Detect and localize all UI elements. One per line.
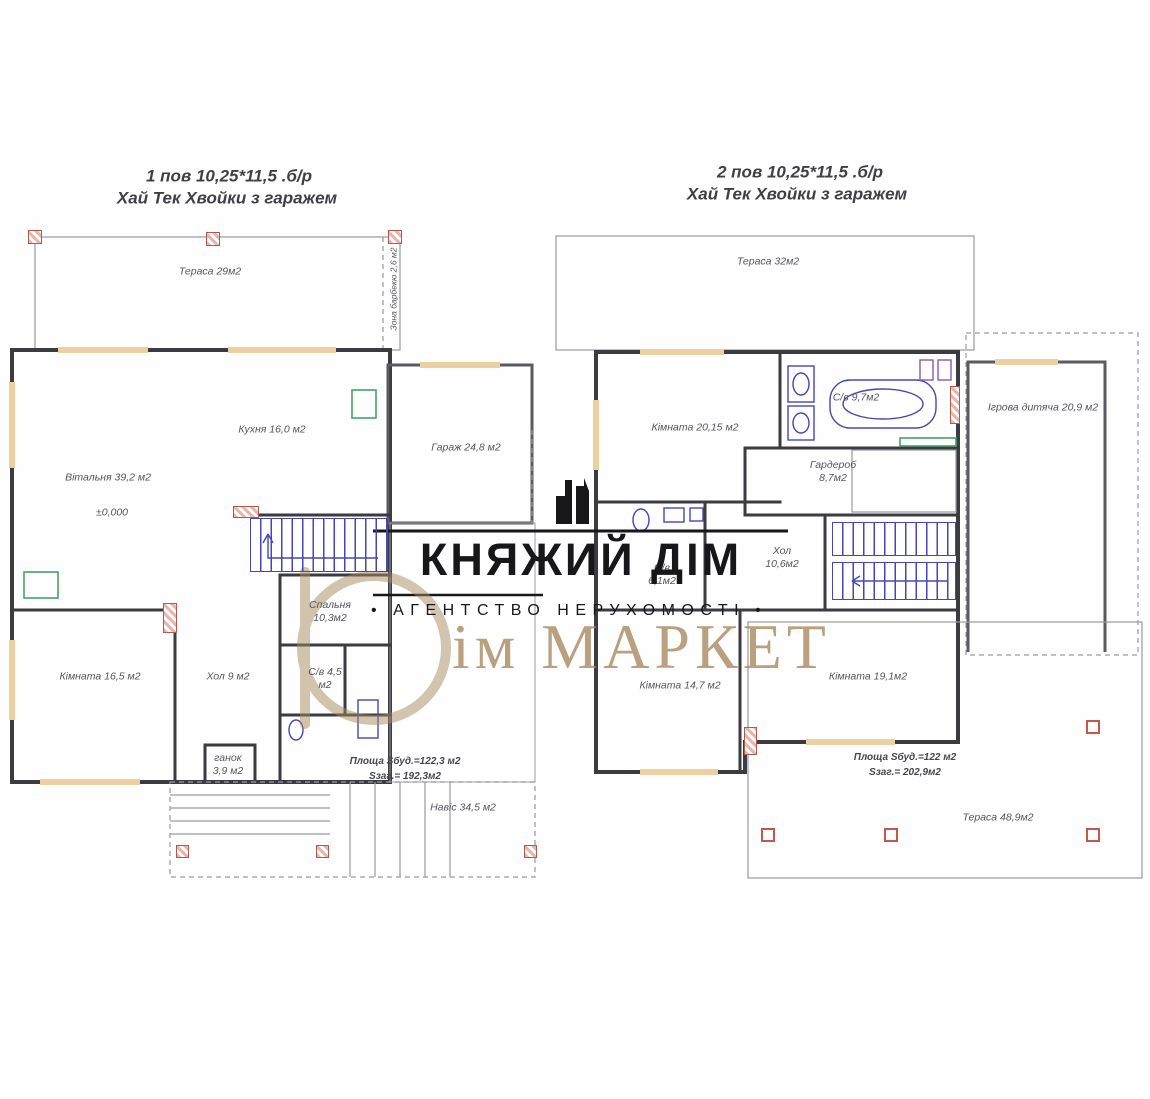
area-summary-line2: Sзаг.= 192,3м2 (369, 771, 441, 784)
right-plan-title-line1: 2 пов 10,25*11,5 .б/р (717, 161, 883, 182)
agency-watermark-name: КНЯЖИЙ ДІМ (373, 534, 789, 586)
wall-post-marker (950, 386, 960, 424)
area-summary-line1: Площа Sбуд.=122,3 м2 (350, 756, 461, 769)
building-skyline-icon (556, 478, 589, 524)
room-label-bbq-zone: Зона барбекю 2,6 м2 (389, 248, 400, 331)
elevation-mark: ±0,000 (96, 506, 128, 519)
room-label-bedroom: Спальня 10,3м2 (301, 599, 359, 625)
room-label-room: Кімната 16,5 м2 (59, 670, 140, 683)
room-label-wardrobe: Гардероб 8,7м2 (798, 459, 868, 485)
left-plan-title-line1: 1 пов 10,25*11,5 .б/р (146, 165, 312, 186)
toilet-icon (938, 360, 951, 380)
canopy-post-marker (176, 845, 189, 858)
terrace-post-marker (388, 230, 402, 244)
room-label-terrace-bottom: Тераса 48,9м2 (962, 811, 1033, 824)
room-label-living-room: Вітальня 39,2 м2 (65, 471, 151, 484)
terrace-post-marker (206, 232, 220, 246)
stairs-flight (832, 562, 956, 600)
canopy-post-marker (316, 845, 329, 858)
wall-post-marker (163, 603, 177, 633)
wall-post-marker (744, 727, 757, 755)
terrace-post-outline-marker (761, 828, 775, 842)
room-label-bathroom-top: С/в 9,7м2 (831, 391, 881, 404)
room-label-kitchen: Кухня 16,0 м2 (238, 423, 305, 436)
room-label-terrace: Тераса 29м2 (179, 265, 241, 278)
stairs-flight (250, 518, 388, 572)
bullet-icon: • (755, 602, 767, 620)
floorplan-image: 1 пов 10,25*11,5 .б/р Хай Тек Хвойки з г… (0, 0, 1150, 1099)
room-label-porch: ганок 3,9 м2 (206, 752, 250, 778)
terrace-post-outline-marker (1086, 828, 1100, 842)
wall-post-marker (233, 506, 259, 518)
stairs-flight (832, 522, 956, 556)
terrace-post-outline-marker (1086, 720, 1100, 734)
washbasin-icon (788, 366, 814, 402)
bullet-icon: • (371, 602, 383, 620)
left-plan-title-line2: Хай Тек Хвойки з гаражем (117, 187, 337, 208)
toilet-icon (920, 360, 933, 380)
room-label-canopy: Навіс 34,5 м2 (430, 801, 496, 814)
room-label-playroom: Ігрова дитяча 20,9 м2 (983, 401, 1103, 414)
d-swash-icon (302, 576, 446, 720)
canopy-post-marker (524, 845, 537, 858)
washbasin-icon (690, 508, 703, 521)
agency-tagline-text: АГЕНТСТВО НЕРУХОМОСТІ (393, 602, 745, 620)
right-plan-title-line2: Хай Тек Хвойки з гаражем (687, 183, 907, 204)
room-label-garage: Гараж 24,8 м2 (431, 441, 500, 454)
shelf-fixture-icon (900, 438, 956, 446)
toilet-icon (633, 509, 649, 531)
area-summary-line2: Sзаг.= 202,9м2 (869, 767, 941, 780)
room-label-bathroom: С/в 4,5 м2 (303, 666, 347, 692)
washbasin-bowl-icon (793, 413, 809, 433)
room-label-room3: Кімната 19,1м2 (829, 670, 907, 683)
market-watermark-text: ім МАРКЕТ (452, 610, 831, 684)
agency-watermark-tagline: • АГЕНТСТВО НЕРУХОМОСТІ • (371, 602, 791, 620)
terrace-post-outline-marker (884, 828, 898, 842)
terrace-post-marker (28, 230, 42, 244)
washbasin-icon (788, 406, 814, 440)
sink-fixture-icon (352, 390, 376, 418)
hearth-fixture-icon (24, 572, 58, 598)
room-label-room1: Кімната 20,15 м2 (652, 421, 739, 434)
area-summary-line1: Площа Sбуд.=122 м2 (854, 752, 956, 765)
washbasin-icon (664, 508, 684, 522)
room-label-hall: Хол 9 м2 (206, 670, 249, 683)
room-label-terrace-top: Тераса 32м2 (737, 255, 799, 268)
washbasin-bowl-icon (793, 373, 809, 395)
